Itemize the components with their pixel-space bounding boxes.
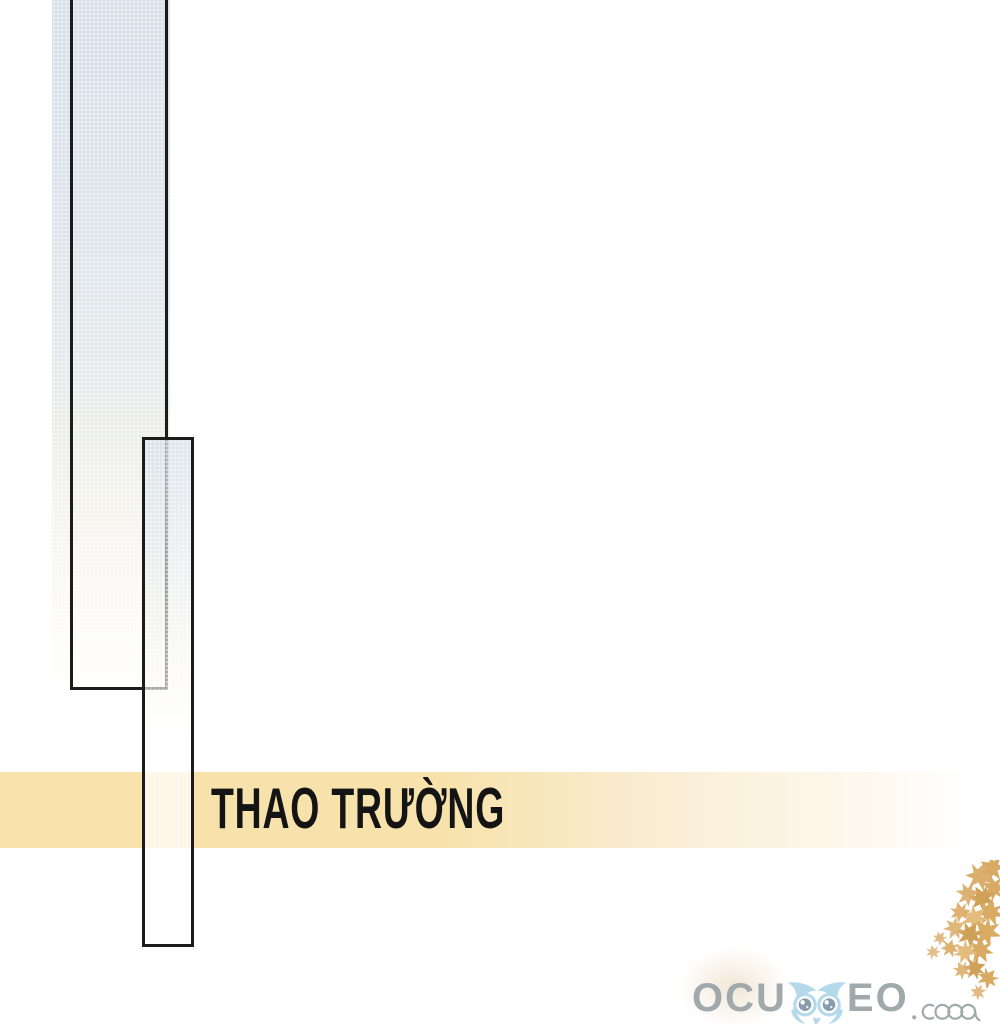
golden-leaves-icon	[920, 860, 1000, 1012]
watermark-text-suffix: EO	[847, 978, 909, 1018]
location-caption: THAO TRƯỜNG	[211, 779, 505, 842]
panel-frame-narrow	[142, 437, 194, 947]
owl-icon	[780, 976, 854, 1026]
watermark-text-prefix: OCU	[692, 978, 787, 1018]
